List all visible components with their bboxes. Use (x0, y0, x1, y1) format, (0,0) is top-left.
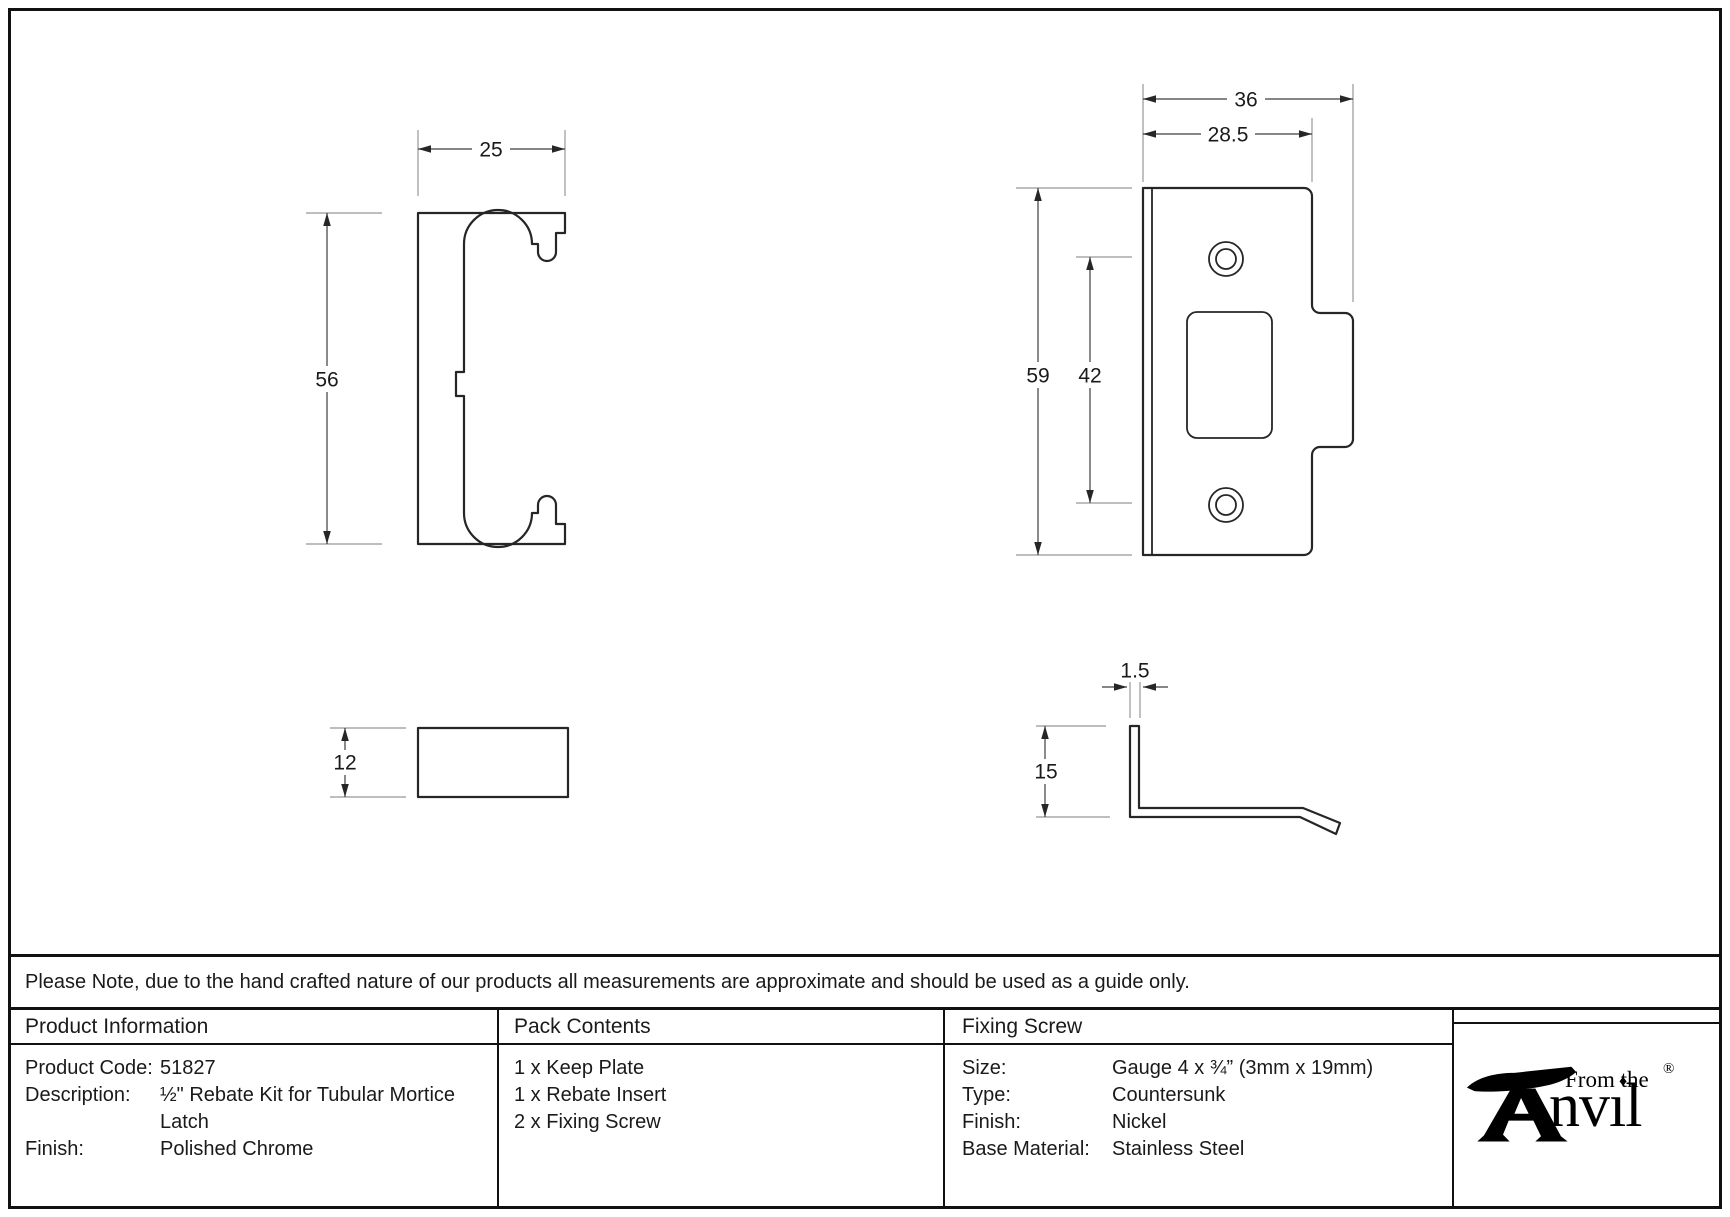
dim-plate-overall-width: 36 (1234, 89, 1257, 112)
dim-lip-height: 15 (1034, 761, 1057, 784)
logo-brand-text: nvıl (1549, 1075, 1641, 1137)
screw-material-label: Base Material: (962, 1136, 1112, 1163)
latch-opening (1187, 312, 1272, 438)
screw-material-value: Stainless Steel (1112, 1136, 1432, 1163)
rebate-insert-side-outline (418, 728, 568, 797)
pack-item: 2 x Fixing Screw (514, 1109, 914, 1136)
dim-plate-width: 28.5 (1208, 124, 1249, 147)
pack-contents-cell: 1 x Keep Plate 1 x Rebate Insert 2 x Fix… (514, 1055, 914, 1136)
pack-item: 1 x Rebate Insert (514, 1082, 914, 1109)
rebate-insert-front-outline (418, 210, 565, 547)
product-code-label: Product Code: (25, 1055, 160, 1082)
keep-plate-side-outline (1130, 726, 1340, 834)
fixing-screw-cell: Size: Gauge 4 x ¾” (3mm x 19mm) Type: Co… (962, 1055, 1432, 1163)
dim-hole-spacing: 42 (1078, 365, 1101, 388)
measurement-note-row: Please Note, due to the hand crafted nat… (8, 957, 1722, 1007)
dim-insert-width: 25 (479, 139, 502, 162)
dim-plate-height: 59 (1026, 365, 1049, 388)
screw-finish-label: Finish: (962, 1109, 1112, 1136)
brand-logo-cell: From the nvıl ♦ ® (1452, 1022, 1722, 1209)
description-label: Description: (25, 1082, 160, 1136)
header-bottom-rule (8, 1043, 1452, 1045)
pack-item: 1 x Keep Plate (514, 1055, 914, 1082)
screw-size-label: Size: (962, 1055, 1112, 1082)
dim-lip-thickness: 1.5 (1120, 660, 1149, 683)
divider-col1 (497, 1007, 499, 1209)
finish-label: Finish: (25, 1136, 160, 1163)
datasheet-page: 25 56 36 28.5 59 42 (0, 0, 1730, 1217)
product-information-header: Product Information (25, 1015, 208, 1039)
screw-size-value: Gauge 4 x ¾” (3mm x 19mm) (1112, 1055, 1432, 1082)
table-top-rule (8, 1007, 1722, 1010)
from-the-anvil-logo: From the nvıl ♦ ® (1467, 1065, 1707, 1151)
screw-hole-top-inner (1216, 249, 1236, 269)
screw-hole-bottom-outer (1209, 488, 1243, 522)
keep-plate-outline (1143, 188, 1353, 555)
divider-col2 (943, 1007, 945, 1209)
screw-hole-bottom-inner (1216, 495, 1236, 515)
screw-finish-value: Nickel (1112, 1109, 1432, 1136)
fixing-screw-header: Fixing Screw (962, 1015, 1082, 1039)
dim-insert-height: 56 (315, 369, 338, 392)
diamond-dot-icon: ♦ (1619, 1073, 1627, 1091)
product-code-value: 51827 (160, 1055, 490, 1082)
technical-drawing: 25 56 36 28.5 59 42 (0, 0, 1730, 960)
screw-type-value: Countersunk (1112, 1082, 1432, 1109)
screw-hole-top-outer (1209, 242, 1243, 276)
description-value: ½" Rebate Kit for Tubular Mortice Latch (160, 1082, 490, 1136)
product-information-cell: Product Code: 51827 Description: ½" Reba… (25, 1055, 485, 1163)
screw-type-label: Type: (962, 1082, 1112, 1109)
registered-mark: ® (1663, 1061, 1674, 1078)
finish-value: Polished Chrome (160, 1136, 490, 1163)
dim-insert-thickness: 12 (333, 752, 356, 775)
measurement-note: Please Note, due to the hand crafted nat… (25, 971, 1190, 994)
pack-contents-header: Pack Contents (514, 1015, 651, 1039)
